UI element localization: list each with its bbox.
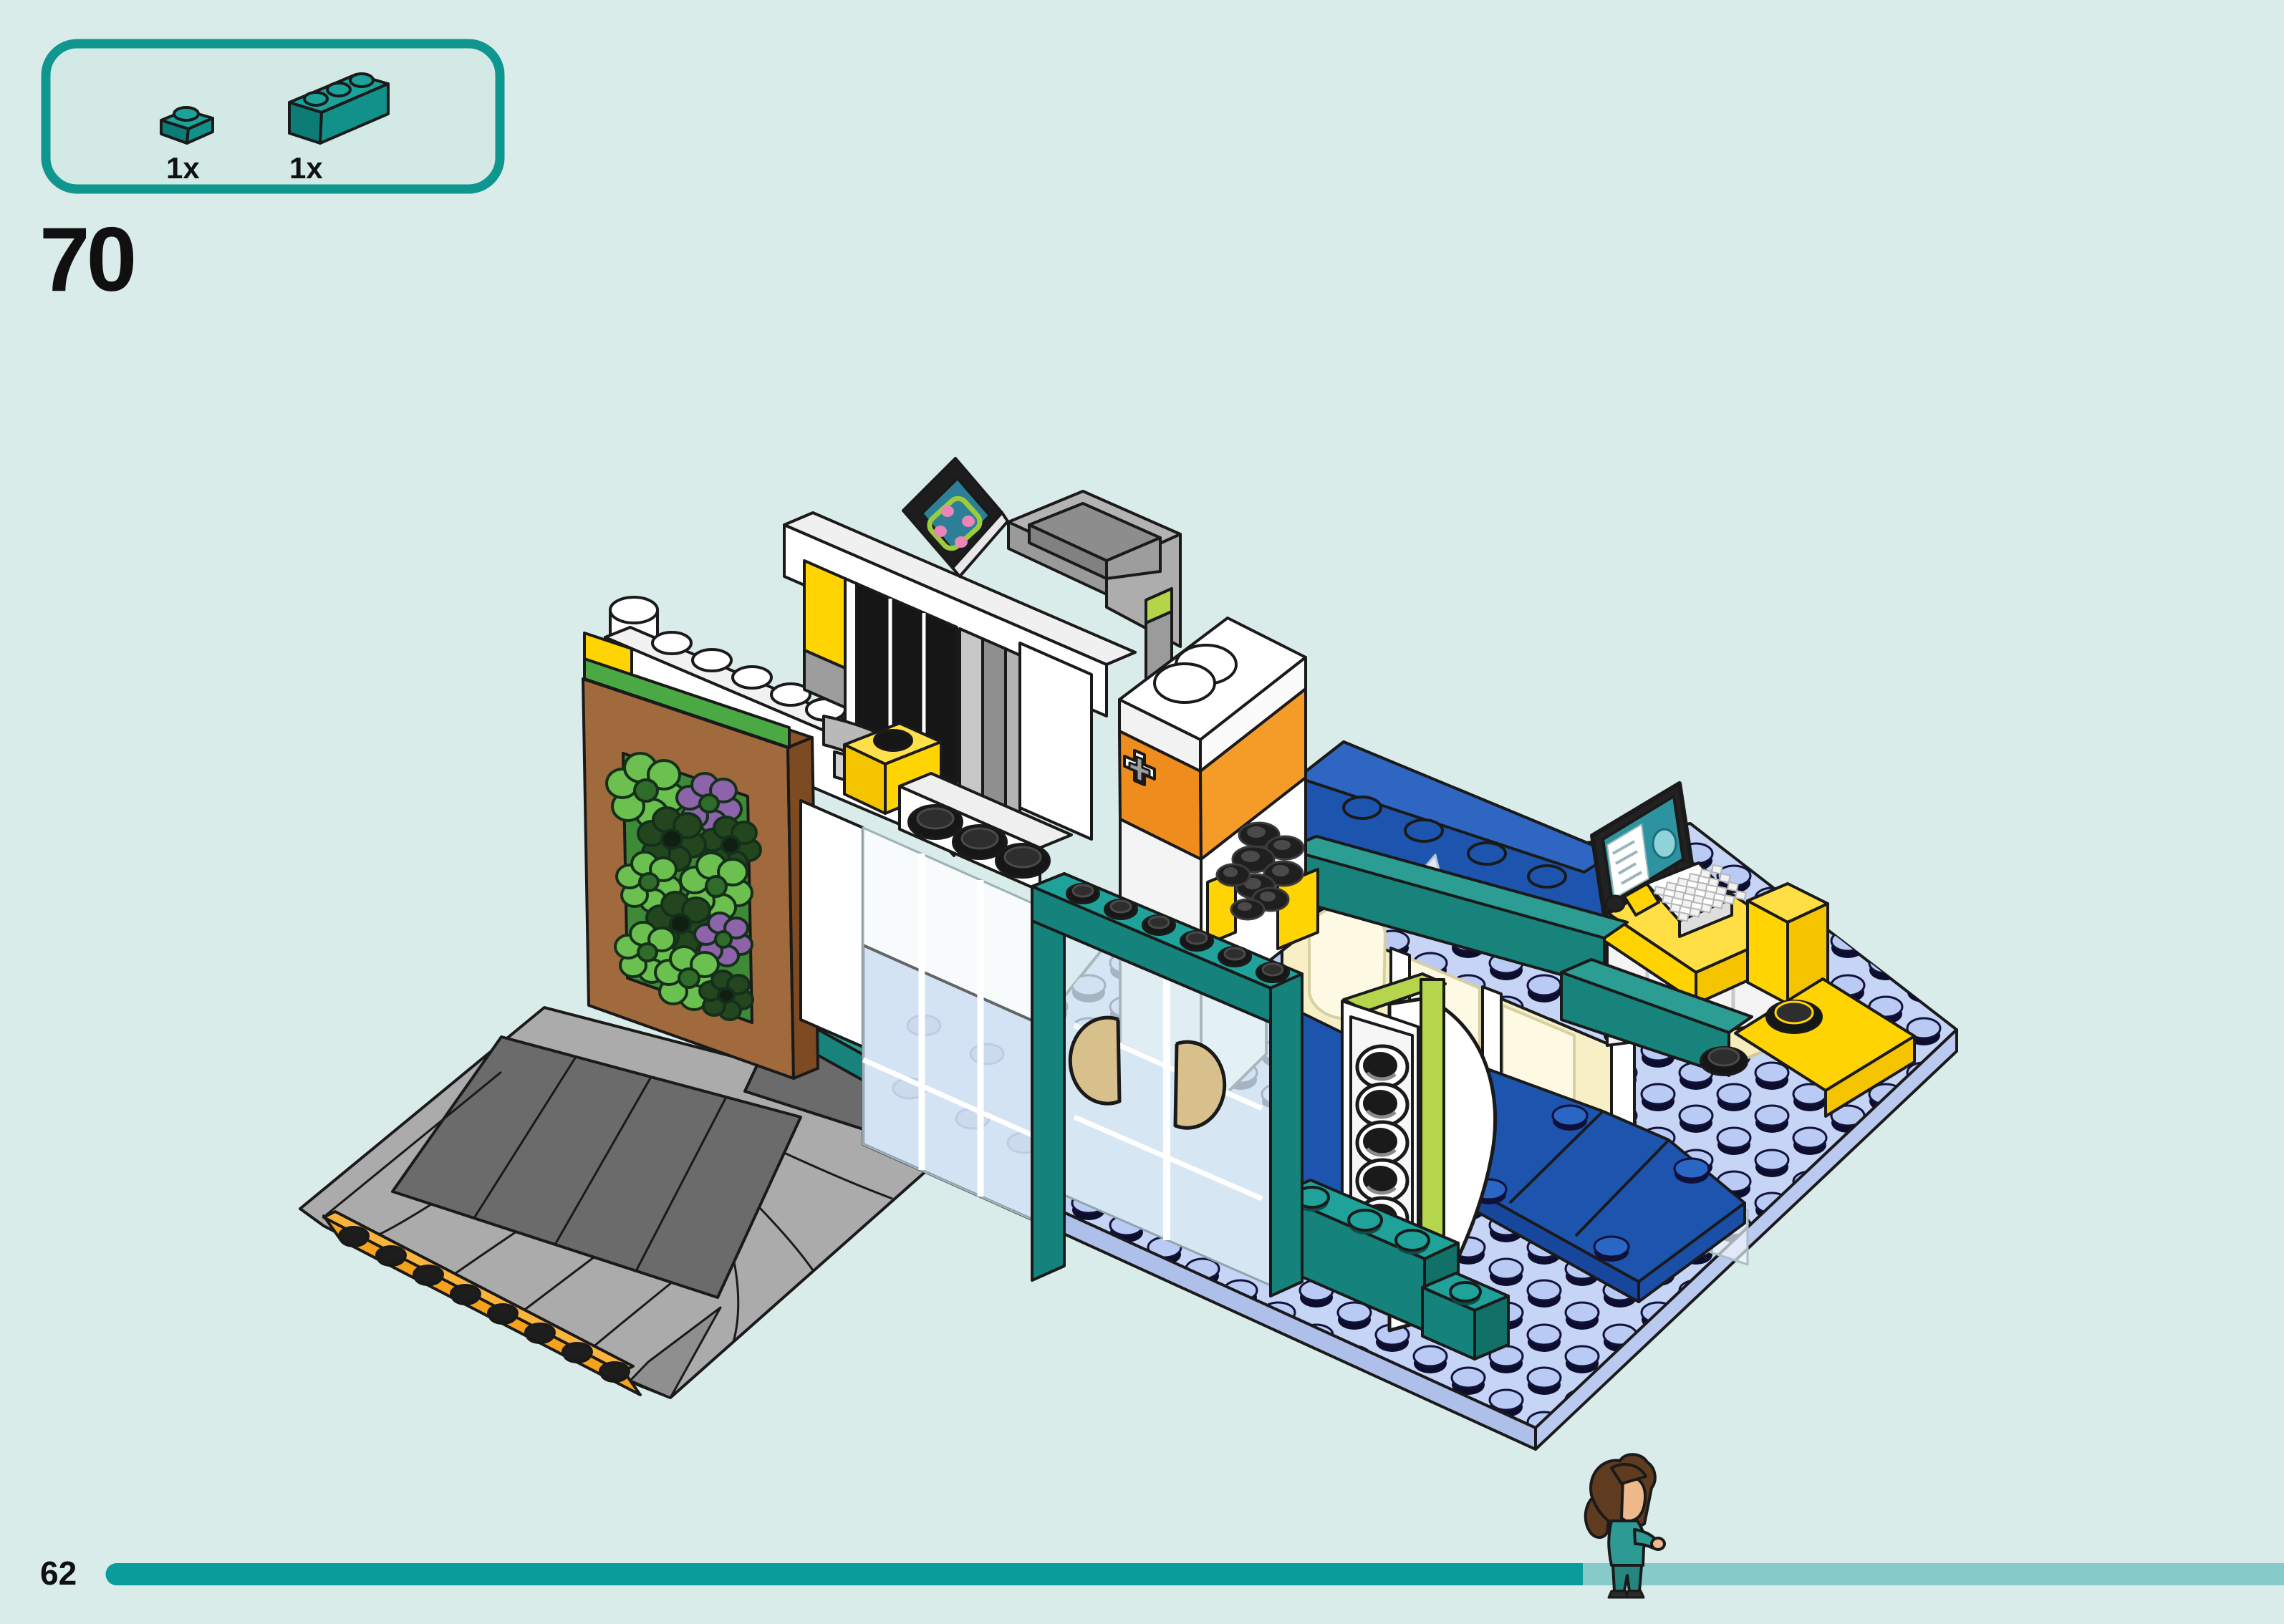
svg-text:62: 62 [40, 1555, 77, 1592]
svg-text:1x: 1x [289, 151, 323, 185]
svg-text:70: 70 [39, 208, 134, 310]
svg-text:1x: 1x [166, 151, 200, 185]
